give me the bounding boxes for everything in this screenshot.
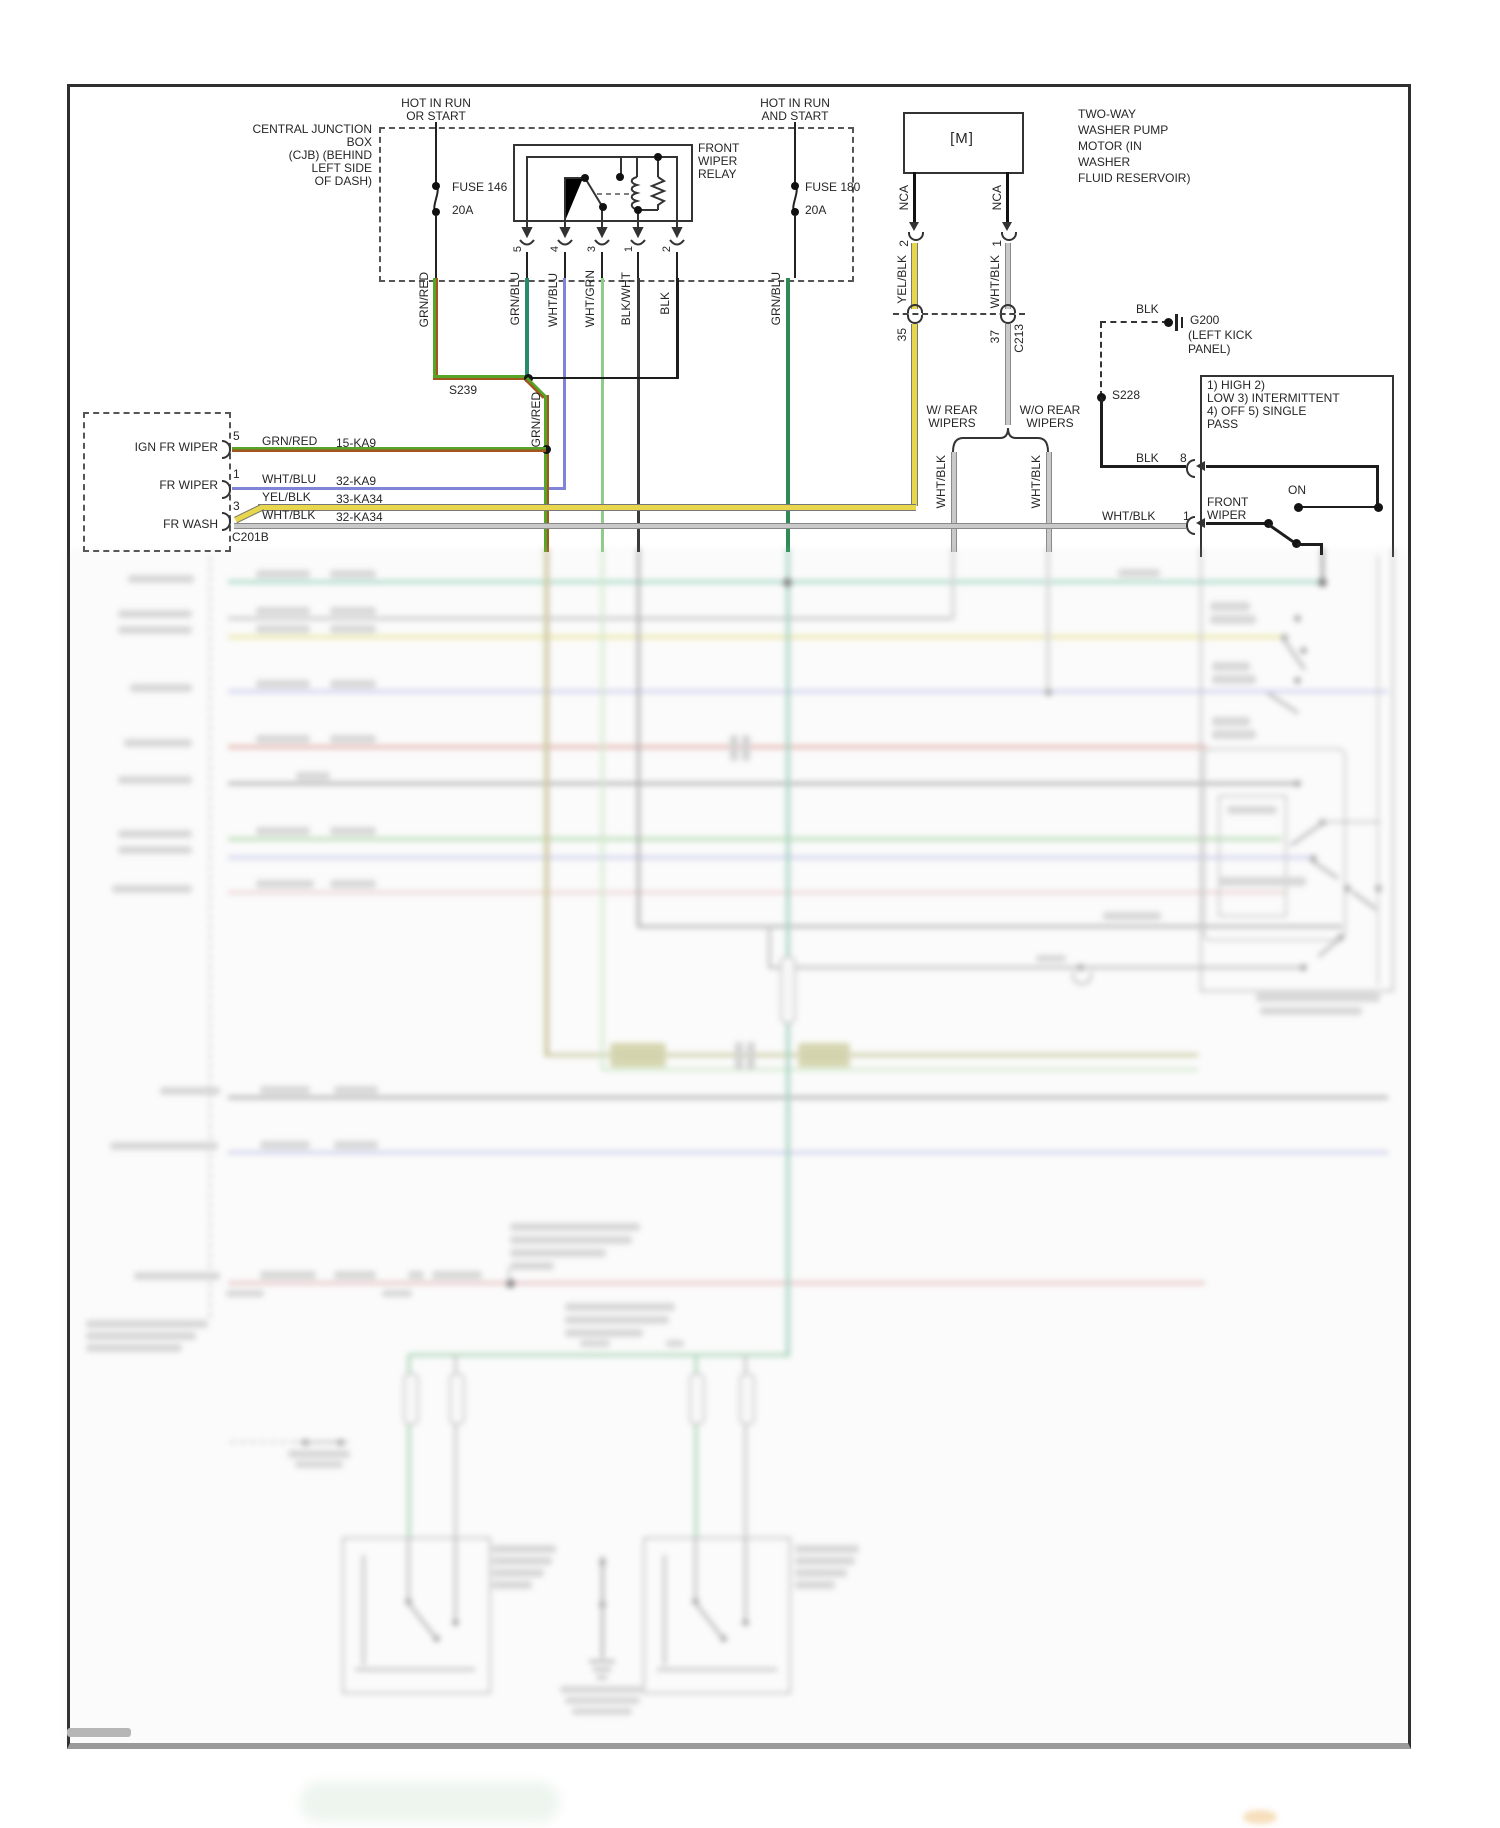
- blurred-label: [118, 830, 192, 838]
- blurred-wire: [228, 1151, 1388, 1154]
- blurred-wire: [951, 548, 955, 620]
- blurred-label: [1036, 955, 1066, 962]
- blurred-label: [130, 684, 192, 692]
- blurred-label: [160, 1087, 220, 1095]
- blurred-diagram-region: [62, 548, 1412, 1748]
- blurred-wire: [228, 745, 1207, 749]
- blurred-label: [118, 610, 192, 618]
- blurred-ground-icon: [1072, 972, 1092, 985]
- blurred-label: [128, 575, 194, 583]
- blurred-wire: [228, 891, 1286, 894]
- blurred-wire: [408, 1353, 789, 1357]
- corner-smudge: [1243, 1810, 1277, 1824]
- blurred-wire: [768, 925, 771, 968]
- blurred-wire: [1046, 548, 1050, 693]
- blurred-dot: [783, 578, 792, 587]
- blurred-label: [124, 739, 192, 747]
- blurred-wire: [601, 548, 604, 1070]
- blurred-label: [118, 776, 192, 784]
- watermark-smudge: [300, 1782, 560, 1822]
- blurred-wire: [544, 548, 549, 1057]
- blurred-wire: [228, 856, 1313, 859]
- blurred-label: [118, 626, 192, 634]
- blurred-wire: [602, 1068, 1198, 1071]
- blurred-wire: [228, 635, 1284, 639]
- blurred-component: [780, 956, 796, 1024]
- blurred-wire: [228, 782, 1297, 785]
- blurred-wire: [786, 548, 790, 1357]
- blurred-wire: [637, 548, 640, 927]
- blurred-dot: [1045, 689, 1052, 696]
- blurred-wire: [228, 580, 1326, 584]
- blurred-wire: [228, 617, 955, 620]
- blurred-label: [110, 1142, 218, 1150]
- blurred-dot: [1077, 964, 1084, 971]
- blurred-label: [118, 846, 192, 854]
- blurred-wire: [228, 837, 1282, 841]
- blurred-wire: [508, 1268, 510, 1283]
- wiring-diagram-page: HOT IN RUN OR START HOT IN RUN AND START…: [0, 0, 1500, 1828]
- blurred-label: [112, 885, 192, 893]
- blurred-wire: [228, 1096, 1388, 1099]
- blurred-connector-line: [209, 556, 211, 1318]
- blurred-content: [0, 0, 1500, 1828]
- blurred-wire: [228, 1281, 1205, 1285]
- blurred-label: [134, 1272, 220, 1280]
